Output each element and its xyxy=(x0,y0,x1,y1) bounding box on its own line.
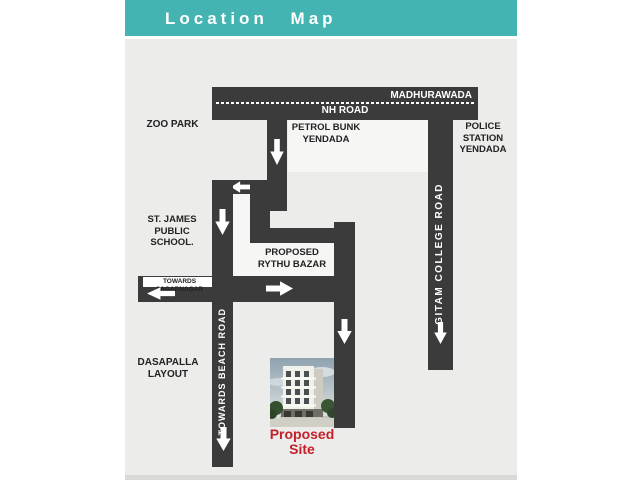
proposed-site-label: Proposed Site xyxy=(266,427,338,457)
page-title: Location Map xyxy=(165,0,337,37)
petrol-bunk-road xyxy=(267,119,287,211)
st-james-school-label: ST. JAMES PUBLIC SCHOOL. xyxy=(132,214,212,249)
dasapalla-layout-label: DASAPALLA LAYOUT xyxy=(133,357,203,381)
madhurawada-label: MADHURAWADA xyxy=(390,90,472,101)
footer-strip xyxy=(125,475,517,480)
beach-road-label: TOWARDS BEACH ROAD xyxy=(217,308,227,435)
zoo-park-label: ZOO PARK xyxy=(135,119,210,131)
location-map-page: Location Map MADHURAWADA NH ROAD GITAM C… xyxy=(0,0,640,480)
arrow-down-icon xyxy=(215,209,230,235)
map-canvas: MADHURAWADA NH ROAD GITAM COLLEGE ROAD T… xyxy=(125,39,517,480)
arrow-right-icon xyxy=(540,105,561,118)
sagarnagar-label-box: TOWARDS SAGARNAGAR xyxy=(143,277,216,287)
nh-road: MADHURAWADA NH ROAD xyxy=(212,87,478,120)
road-median-dashes xyxy=(216,102,474,104)
arrow-down-icon xyxy=(434,322,447,344)
rythu-bazar-label: PROPOSED RYTHU BAZAR xyxy=(252,247,332,270)
header-bar: Location Map xyxy=(125,0,517,36)
gitam-college-road: GITAM COLLEGE ROAD xyxy=(428,119,453,370)
map-content: Location Map MADHURAWADA NH ROAD GITAM C… xyxy=(125,0,517,480)
building-illustration xyxy=(270,358,334,427)
petrol-bunk-label: PETROL BUNK YENDADA xyxy=(290,122,362,145)
nh-road-label: NH ROAD xyxy=(212,105,478,116)
beach-road: TOWARDS BEACH ROAD xyxy=(212,180,233,467)
police-station-label: POLICE STATION YENDADA xyxy=(458,121,508,156)
proposed-site-photo xyxy=(270,358,334,427)
gitam-college-road-label: GITAM COLLEGE ROAD xyxy=(434,183,445,325)
inner-block xyxy=(233,194,250,276)
